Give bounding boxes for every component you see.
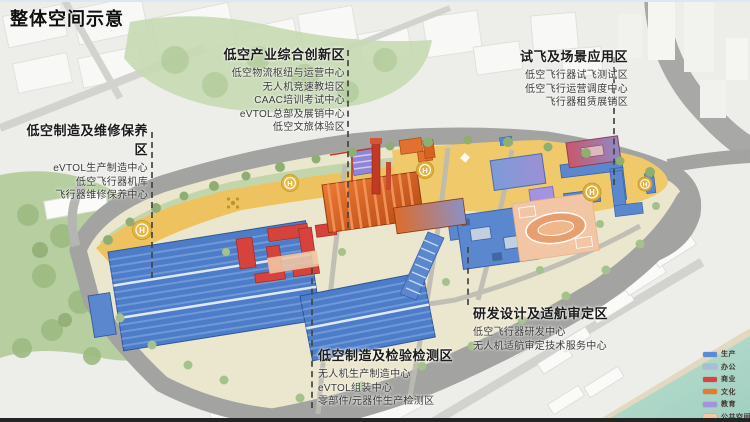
zone-item: 飞行器维修保养中心 (15, 189, 148, 203)
leader-line-innovation (347, 50, 349, 228)
bottom-bar (0, 418, 750, 422)
zone-item: eVTOL组装中心 (318, 382, 493, 396)
legend-label: 生产 (721, 349, 736, 359)
zone-item: 低空飞行运营调度中心 (470, 83, 628, 97)
zone-label-innovation: 低空产业综合创新区 低空物流枢纽与运营中心 无人机竞速教培区 CAAC培训考试中… (145, 44, 345, 135)
zone-title: 低空制造及检验检测区 (318, 345, 493, 364)
legend-label: 教育 (721, 399, 736, 409)
svg-text:H: H (589, 188, 595, 197)
legend-row-culture: 文化 (703, 386, 750, 398)
zone-title: 试飞及场景应用区 (470, 46, 628, 65)
zone-title: 研发设计及适航审定区 (473, 303, 683, 322)
legend-label: 商业 (721, 374, 736, 384)
zone-label-rd: 研发设计及适航审定区 低空飞行器研发中心 无人机适航审定技术服务中心 (473, 303, 683, 353)
page-title: 整体空间示意 (10, 5, 124, 31)
zone-item: 无人机竞速教培区 (145, 81, 345, 95)
zone-item: 低空物流枢纽与运营中心 (145, 67, 345, 81)
zone-item: 低空飞行器研发中心 (473, 326, 683, 340)
zone-label-maintenance: 低空制造及维修保养区 eVTOL生产制造中心 低空飞行器机库 飞行器维修保养中心 (15, 120, 148, 203)
legend: 生产 办公 商业 文化 教育 公共空间 (703, 348, 750, 422)
zone-item: eVTOL生产制造中心 (15, 162, 148, 176)
leader-line-maintenance (151, 132, 153, 278)
legend-label: 文化 (721, 387, 736, 397)
zone-item: 低空飞行器机库 (15, 176, 148, 190)
legend-swatch-education (703, 402, 717, 407)
legend-swatch-culture (703, 389, 717, 394)
svg-text:H: H (287, 179, 292, 188)
zone-item: 低空飞行器试飞测试区 (470, 69, 628, 83)
zone-label-flight-test: 试飞及场景应用区 低空飞行器试飞测试区 低空飞行运营调度中心 飞行器租赁展销区 (470, 46, 628, 110)
zone-label-inspection: 低空制造及检验检测区 无人机生产制造中心 eVTOL组装中心 零部件/元器件生产… (318, 345, 493, 409)
zone-item: CAAC培训考试中心 (145, 94, 345, 108)
svg-text:H: H (422, 166, 427, 175)
svg-text:H: H (139, 226, 145, 235)
slide-canvas: H H H H H (0, 0, 750, 422)
svg-text:H: H (643, 182, 648, 189)
zone-item: 飞行器租赁展销区 (470, 96, 628, 110)
legend-swatch-office (703, 364, 717, 369)
zone-title: 低空制造及维修保养区 (15, 120, 148, 158)
legend-row-production: 生产 (703, 348, 750, 360)
zone-item: 无人机适航审定技术服务中心 (473, 340, 683, 354)
legend-swatch-commercial (703, 377, 717, 382)
zone-title: 低空产业综合创新区 (145, 44, 345, 63)
legend-label: 办公 (721, 362, 736, 372)
leader-line-rd (467, 247, 469, 305)
zone-item: 零部件/元器件生产检测区 (318, 395, 493, 409)
zone-item: eVTOL总部及展销中心 (145, 108, 345, 122)
track-field (512, 193, 599, 262)
legend-row-office: 办公 (703, 361, 750, 373)
leader-line-inspection (311, 268, 313, 408)
top-strip (0, 0, 750, 2)
legend-row-education: 教育 (703, 398, 750, 410)
zone-item: 低空文旅体验区 (145, 121, 345, 135)
legend-row-commercial: 商业 (703, 373, 750, 385)
legend-swatch-production (703, 352, 717, 357)
zone-item: 无人机生产制造中心 (318, 368, 493, 382)
